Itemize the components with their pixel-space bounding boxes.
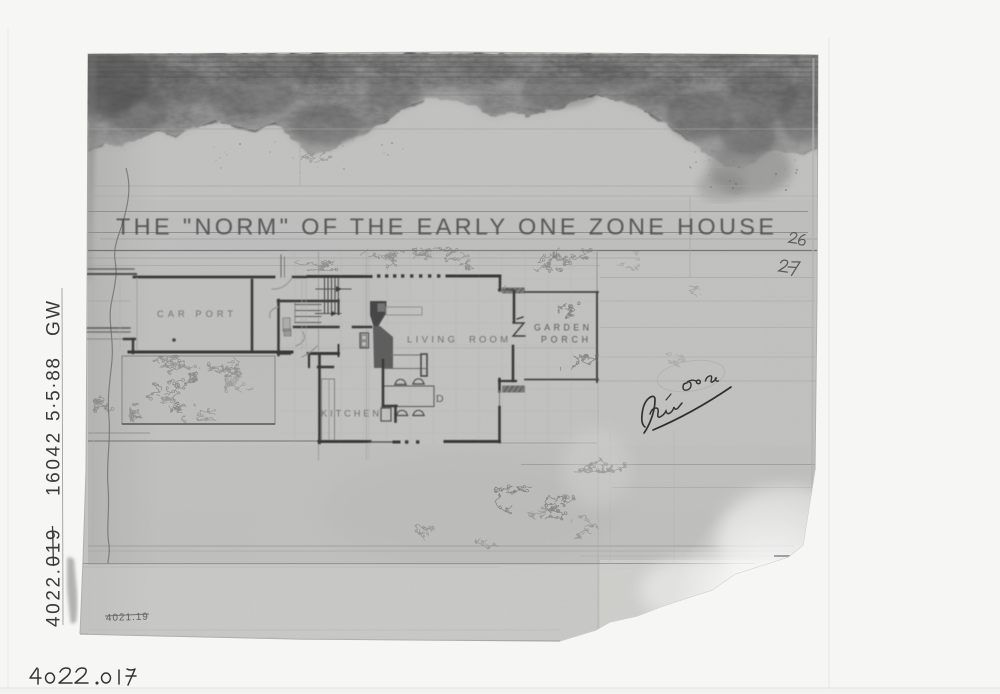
svg-text:CAR PORT: CAR PORT — [157, 309, 233, 319]
svg-text:4021.19: 4021.19 — [106, 612, 149, 624]
svg-text:4022.019: 4022.019 — [44, 527, 65, 627]
svg-text:GW: GW — [44, 298, 65, 336]
svg-text:5·5·88: 5·5·88 — [44, 356, 65, 421]
svg-text:D: D — [436, 393, 444, 405]
svg-text:16042: 16042 — [44, 430, 65, 496]
